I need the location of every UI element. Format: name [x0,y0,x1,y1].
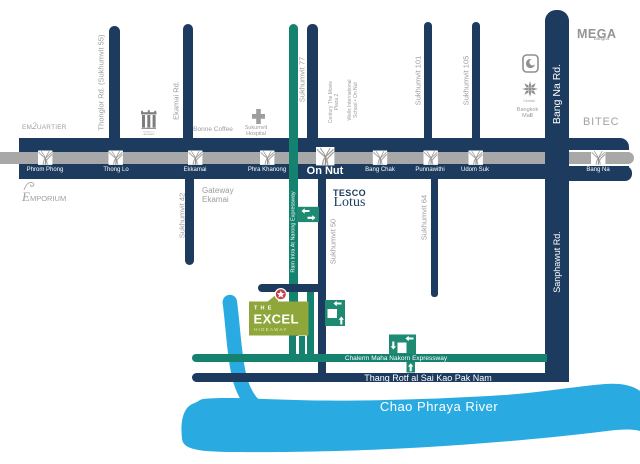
svg-text:EXCEL: EXCEL [254,312,299,327]
svg-text:HIDEAWAY: HIDEAWAY [254,327,288,332]
svg-text:LANDMARK: LANDMARK [143,133,156,136]
